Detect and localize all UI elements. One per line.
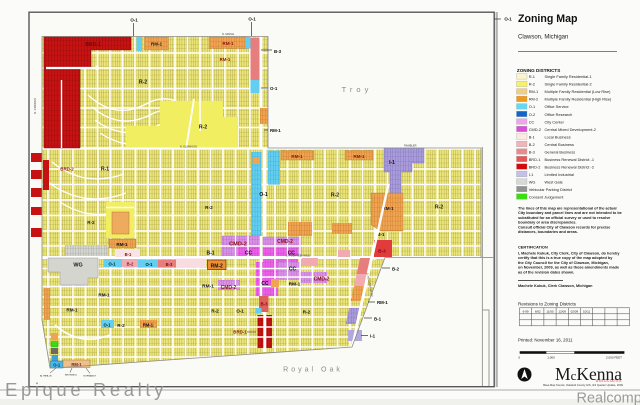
svg-text:O-1: O-1 (130, 18, 138, 23)
svg-text:BRD-1: BRD-1 (85, 42, 100, 48)
svg-text:Epique Realty: Epique Realty (5, 379, 167, 400)
svg-text:O-1: O-1 (236, 309, 244, 314)
svg-text:R-2: R-2 (435, 205, 443, 211)
svg-text:Revisions to Zoning Districts: Revisions to Zoning Districts (518, 302, 577, 307)
svg-text:Multiple Family Residential (H: Multiple Family Residential (High Rise) (545, 97, 613, 102)
svg-text:on November, 2009, as well as: on November, 2009, as well as those amen… (518, 266, 619, 270)
svg-text:RM-1: RM-1 (98, 293, 110, 298)
svg-text:CC: CC (261, 281, 269, 287)
svg-text:BRD-1: BRD-1 (233, 330, 247, 335)
svg-text:RAMBLER: RAMBLER (404, 144, 417, 148)
svg-text:Consult official City of Claws: Consult official City of Clawson records… (518, 225, 610, 229)
svg-text:BRD-2: BRD-2 (60, 167, 74, 172)
svg-text:RM-1: RM-1 (291, 154, 303, 159)
svg-text:Business Renewal District -1: Business Renewal District -1 (545, 157, 595, 162)
svg-text:10/11: 10/11 (583, 309, 591, 313)
svg-text:Realcomp: Realcomp (577, 391, 640, 405)
svg-text:Clawson, Michigan: Clawson, Michigan (518, 35, 568, 41)
svg-text:Office Research: Office Research (545, 112, 573, 117)
svg-text:N. CROOKS: N. CROOKS (33, 98, 37, 114)
svg-text:RM-1: RM-1 (353, 154, 365, 159)
svg-text:RM-1: RM-1 (220, 57, 231, 62)
svg-text:B-3: B-3 (274, 49, 282, 54)
svg-text:certify that this is a true co: certify that this is a true copy of the … (518, 256, 613, 260)
svg-text:I, Machele Kukuk, City Clerk,: I, Machele Kukuk, City Clerk, City of Cl… (518, 252, 620, 256)
svg-text:CMD-2: CMD-2 (221, 285, 237, 291)
svg-text:boundary or area discrepancies: boundary or area discrepancies. (518, 221, 576, 225)
svg-text:R-2: R-2 (199, 125, 207, 131)
svg-text:General Business: General Business (545, 149, 576, 154)
svg-text:I-1: I-1 (389, 160, 395, 166)
svg-text:Royal Oak: Royal Oak (283, 367, 343, 374)
svg-text:R-2: R-2 (331, 193, 339, 199)
svg-text:ZONING DISTRICTS: ZONING DISTRICTS (517, 68, 560, 73)
svg-text:O-1: O-1 (109, 262, 117, 267)
svg-text:West Gate: West Gate (545, 179, 563, 184)
svg-text:E. FOURTEEN MILE: E. FOURTEEN MILE (286, 254, 310, 258)
svg-text:Single Family Residential-1: Single Family Residential-1 (545, 74, 592, 79)
svg-text:CC: CC (529, 119, 535, 124)
svg-text:RM-1: RM-1 (151, 42, 163, 47)
svg-text:B-2: B-2 (392, 267, 400, 272)
svg-text:Multiple Family Residential (L: Multiple Family Residential (Low Rise) (545, 89, 612, 94)
svg-text:Zoning Map: Zoning Map (518, 13, 578, 25)
svg-text:Troy: Troy (342, 85, 373, 94)
svg-text:WG: WG (73, 263, 82, 269)
svg-text:RM-1: RM-1 (529, 89, 539, 94)
svg-text:B-2: B-2 (529, 142, 535, 147)
svg-text:O-1: O-1 (259, 192, 268, 198)
svg-text:Printed: November 16, 2011: Printed: November 16, 2011 (518, 338, 573, 343)
svg-text:12/09: 12/09 (558, 309, 566, 313)
svg-text:B-1: B-1 (125, 252, 132, 257)
svg-text:6-99: 6-99 (523, 309, 529, 313)
svg-text:CMD-2: CMD-2 (314, 277, 330, 283)
svg-text:O-2: O-2 (529, 112, 536, 117)
svg-text:R-2: R-2 (211, 309, 219, 314)
svg-text:RM-1: RM-1 (143, 323, 154, 328)
svg-text:CMD-2: CMD-2 (229, 242, 247, 248)
svg-text:2,000 FEET: 2,000 FEET (606, 356, 622, 360)
svg-text:RM-1: RM-1 (202, 284, 214, 290)
svg-text:B-1: B-1 (206, 250, 214, 256)
svg-text:B-2: B-2 (127, 262, 134, 267)
svg-text:CC: CC (289, 266, 297, 272)
svg-text:WG: WG (529, 179, 536, 184)
svg-text:R-2: R-2 (205, 205, 213, 211)
svg-text:11/05: 11/05 (546, 309, 554, 313)
svg-text:CMD-2: CMD-2 (277, 239, 293, 245)
svg-text:ALTHEA LN: ALTHEA LN (40, 375, 52, 378)
svg-text:Base Map Source: Oakland Count: Base Map Source: Oakland County GIS, 3rd… (543, 383, 623, 387)
svg-text:NORMANDY: NORMANDY (84, 375, 97, 378)
svg-text:R-1: R-1 (101, 167, 109, 173)
svg-text:B-3: B-3 (260, 302, 268, 307)
svg-text:Office Service: Office Service (545, 104, 569, 109)
svg-text:N. MAPLE: N. MAPLE (222, 32, 234, 36)
svg-text:CERTIFICATION: CERTIFICATION (518, 245, 548, 250)
svg-text:O-1: O-1 (270, 86, 278, 91)
svg-text:B-3: B-3 (378, 249, 386, 254)
svg-text:City boundary and parcel lines: City boundary and parcel lines and are n… (518, 211, 622, 215)
svg-text:Machele Kukuk, Clerk Clawson,: Machele Kukuk, Clerk Clawson, Michigan (518, 284, 593, 288)
svg-text:Central Business: Central Business (545, 142, 574, 147)
svg-text:as of the revision dates shown: as of the revision dates shown. (518, 270, 574, 274)
svg-text:BROWNELL: BROWNELL (65, 375, 78, 377)
svg-text:R-2: R-2 (303, 310, 311, 315)
svg-text:City Center: City Center (545, 119, 565, 124)
svg-text:1,000: 1,000 (547, 356, 555, 360)
svg-text:B-1: B-1 (374, 317, 382, 322)
svg-text:B-1: B-1 (529, 134, 535, 139)
svg-text:RM-1: RM-1 (270, 128, 281, 133)
svg-text:substituted for an official su: substituted for an official survey or us… (518, 216, 610, 220)
svg-text:N. ELMWOOD: N. ELMWOOD (180, 145, 197, 149)
svg-text:R-2: R-2 (529, 82, 535, 87)
svg-text:BRD-1: BRD-1 (529, 157, 541, 162)
svg-text:RM-2: RM-2 (529, 97, 539, 102)
svg-text:I-1: I-1 (529, 172, 534, 177)
svg-text:RM-1: RM-1 (377, 300, 388, 305)
svg-text:R-2: R-2 (139, 80, 147, 86)
svg-text:RM-1: RM-1 (66, 308, 78, 313)
svg-text:Business Renewal District -2: Business Renewal District -2 (545, 164, 595, 169)
svg-text:I-1: I-1 (370, 334, 376, 339)
svg-text:02/09: 02/09 (571, 309, 579, 313)
svg-text:The lines of this map are repr: The lines of this map are representation… (518, 207, 617, 211)
svg-text:RM-1: RM-1 (116, 242, 128, 247)
svg-text:6/02: 6/02 (535, 309, 541, 313)
svg-text:O-1: O-1 (146, 262, 154, 267)
svg-text:Vehicular Parking District: Vehicular Parking District (529, 187, 573, 192)
svg-text:B-3: B-3 (529, 149, 535, 154)
svg-text:O-1: O-1 (248, 17, 256, 22)
svg-text:Local Business: Local Business (545, 134, 571, 139)
svg-text:Central Mixed Development-2: Central Mixed Development-2 (545, 127, 596, 132)
svg-text:the City Council for the City: the City Council for the City of Clawson… (518, 261, 609, 265)
svg-text:Limited Industrial: Limited Industrial (545, 172, 575, 177)
svg-text:RM-1: RM-1 (222, 41, 234, 46)
svg-text:BRD-2: BRD-2 (529, 164, 541, 169)
svg-text:CC: CC (245, 250, 253, 256)
svg-text:R-2: R-2 (117, 323, 125, 328)
svg-text:R-2: R-2 (87, 220, 95, 225)
svg-text:CMD-2: CMD-2 (529, 127, 541, 132)
svg-text:O-1: O-1 (529, 104, 536, 109)
svg-text:O-1: O-1 (504, 17, 512, 22)
svg-text:Single Family Residential-2: Single Family Residential-2 (545, 82, 592, 87)
svg-text:ASSOCIATES: ASSOCIATES (596, 379, 622, 383)
svg-text:O-1: O-1 (53, 363, 61, 368)
svg-text:B-3: B-3 (166, 262, 173, 267)
svg-text:RM-2: RM-2 (211, 263, 223, 269)
svg-text:Consent Judgement: Consent Judgement (529, 194, 565, 199)
svg-text:O-1: O-1 (104, 323, 112, 328)
svg-text:RM-1: RM-1 (289, 282, 301, 288)
svg-text:distances, boundaries and area: distances, boundaries and areas. (518, 230, 578, 234)
svg-text:R-1: R-1 (529, 74, 535, 79)
